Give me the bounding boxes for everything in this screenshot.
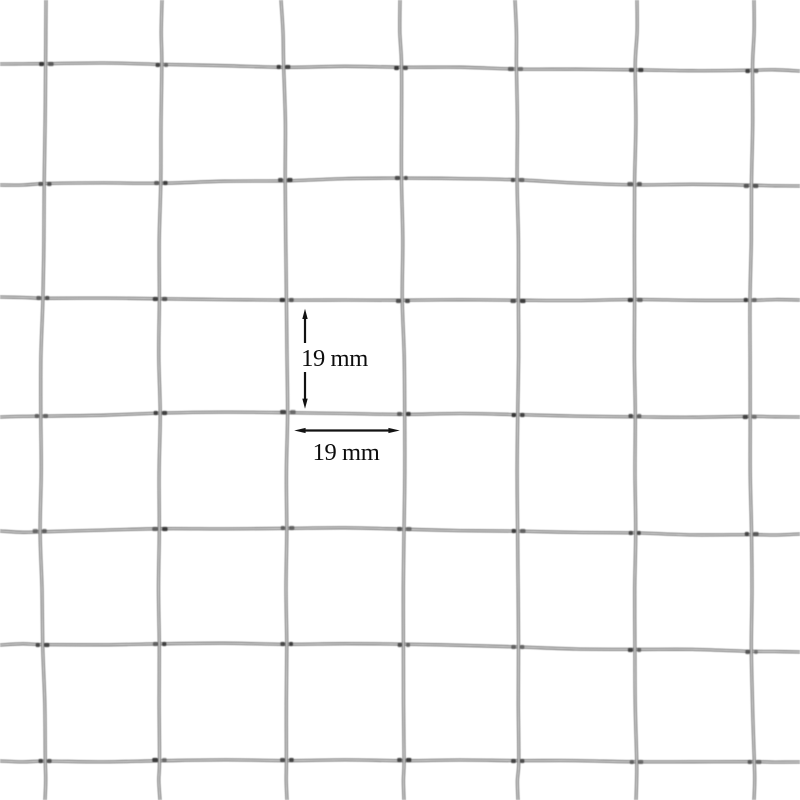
svg-text:19 mm: 19 mm bbox=[313, 439, 380, 466]
svg-text:19 mm: 19 mm bbox=[301, 345, 368, 372]
